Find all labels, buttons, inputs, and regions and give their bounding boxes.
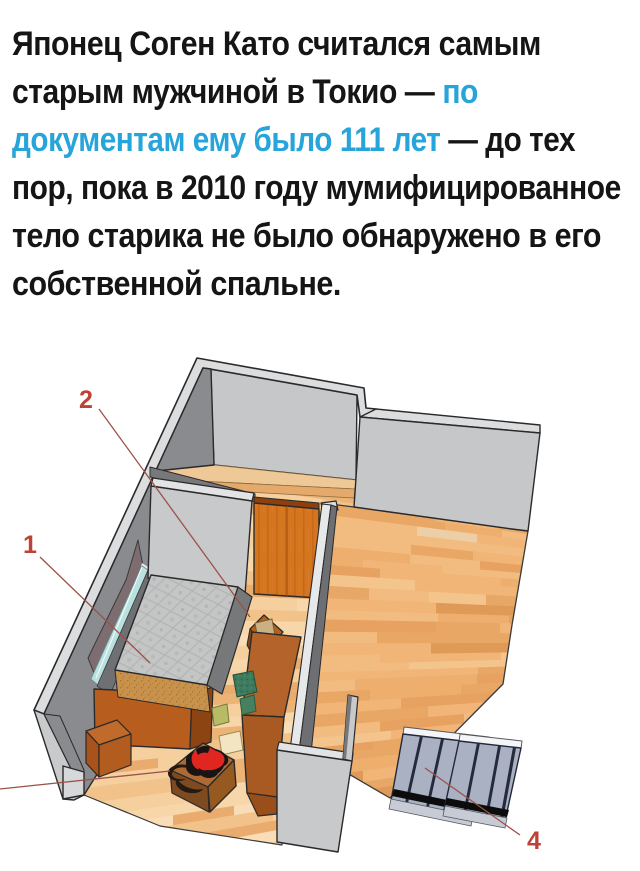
svg-text:4: 4 <box>527 827 541 855</box>
svg-text:2: 2 <box>79 386 93 414</box>
svg-text:1: 1 <box>23 531 37 559</box>
